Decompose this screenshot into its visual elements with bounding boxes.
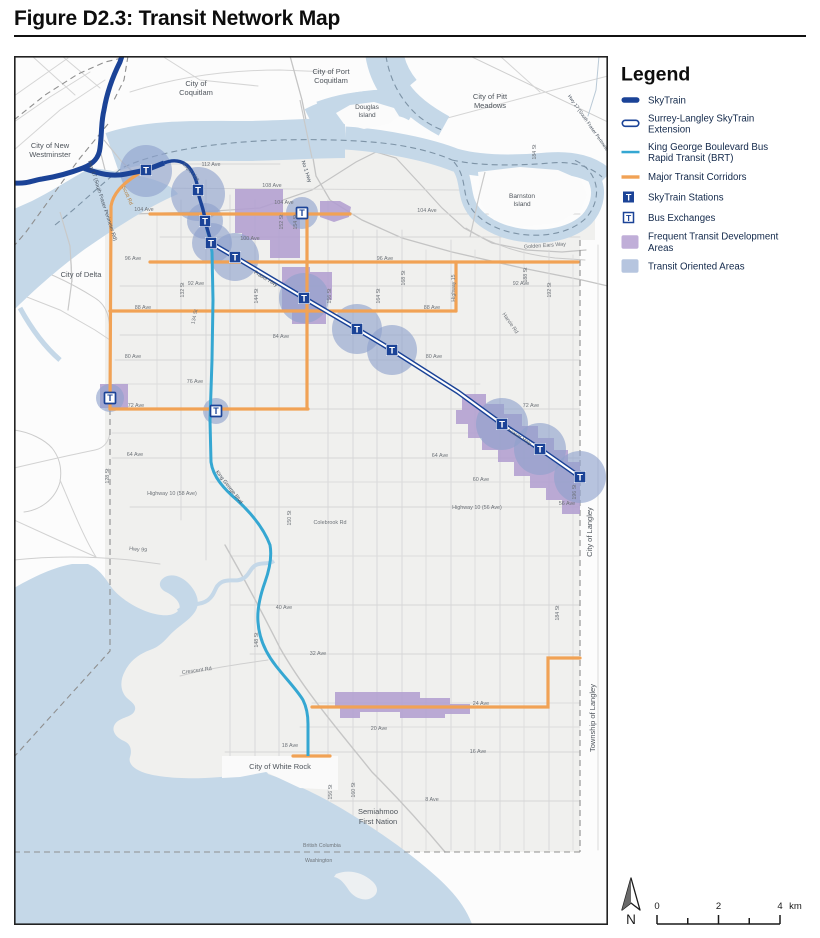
svg-text:Barnston: Barnston (509, 193, 535, 200)
svg-text:128 St: 128 St (105, 468, 111, 484)
svg-text:Frequent Transit Development: Frequent Transit Development (648, 232, 779, 243)
svg-text:4: 4 (777, 901, 782, 912)
svg-text:104 Ave: 104 Ave (417, 208, 436, 214)
svg-text:T: T (354, 324, 360, 335)
svg-text:92 Ave: 92 Ave (188, 281, 204, 287)
svg-text:72 Ave: 72 Ave (128, 403, 144, 409)
svg-text:T: T (202, 216, 208, 227)
svg-text:Township of Langley: Township of Langley (588, 684, 597, 752)
svg-text:Coquitlam: Coquitlam (314, 76, 348, 85)
svg-text:N: N (626, 912, 636, 927)
svg-text:0: 0 (654, 901, 659, 912)
svg-text:16 Ave: 16 Ave (470, 749, 486, 755)
svg-text:T: T (195, 185, 201, 196)
svg-text:T: T (143, 165, 149, 176)
svg-text:84 Ave: 84 Ave (273, 334, 289, 340)
svg-text:City of: City of (185, 79, 207, 88)
svg-text:Highway 15: Highway 15 (451, 274, 457, 301)
svg-text:160 St: 160 St (351, 782, 357, 798)
svg-text:64 Ave: 64 Ave (127, 452, 143, 458)
svg-text:Island: Island (358, 112, 376, 119)
svg-text:British Columbia: British Columbia (303, 843, 341, 849)
svg-text:Areas: Areas (648, 243, 673, 254)
svg-text:184 St: 184 St (532, 144, 538, 160)
svg-text:City of Port: City of Port (312, 67, 350, 76)
svg-text:24 Ave: 24 Ave (473, 701, 489, 707)
svg-text:T: T (499, 419, 505, 430)
svg-text:Westminster: Westminster (29, 150, 71, 159)
svg-text:T: T (626, 193, 632, 203)
svg-text:Highway 10 (58 Ave): Highway 10 (58 Ave) (147, 491, 197, 497)
svg-text:88 Ave: 88 Ave (424, 305, 440, 311)
svg-text:100 Ave: 100 Ave (240, 236, 259, 242)
svg-text:2: 2 (716, 901, 721, 912)
svg-text:Island: Island (513, 201, 531, 208)
svg-text:144 St: 144 St (254, 288, 260, 304)
svg-text:Legend: Legend (621, 64, 690, 86)
svg-text:80 Ave: 80 Ave (125, 354, 141, 360)
svg-text:18 Ave: 18 Ave (282, 743, 298, 749)
svg-text:Transit Oriented Areas: Transit Oriented Areas (648, 262, 745, 273)
svg-text:96 Ave: 96 Ave (125, 256, 141, 262)
svg-text:108 Ave: 108 Ave (262, 183, 281, 189)
svg-text:SkyTrain: SkyTrain (648, 96, 686, 107)
svg-text:56 Ave: 56 Ave (559, 501, 575, 507)
svg-text:148 St: 148 St (254, 632, 260, 648)
svg-text:First Nation: First Nation (359, 817, 397, 826)
svg-text:SkyTrain Stations: SkyTrain Stations (648, 193, 724, 204)
svg-text:Colebrook Rd: Colebrook Rd (314, 520, 347, 526)
svg-text:40 Ave: 40 Ave (276, 605, 292, 611)
svg-text:Coquitlam: Coquitlam (179, 88, 213, 97)
svg-text:Semiahmoo: Semiahmoo (358, 807, 398, 816)
svg-text:150 St: 150 St (287, 510, 293, 526)
svg-text:City of Delta: City of Delta (61, 270, 103, 279)
svg-text:T: T (626, 213, 632, 223)
svg-text:64 Ave: 64 Ave (432, 453, 448, 459)
svg-text:32 Ave: 32 Ave (310, 651, 326, 657)
svg-text:164 St: 164 St (376, 288, 382, 304)
svg-text:132 St: 132 St (180, 282, 186, 298)
svg-text:76 Ave: 76 Ave (187, 379, 203, 385)
svg-text:188 St: 188 St (523, 267, 529, 283)
svg-text:112 Ave: 112 Ave (202, 162, 221, 168)
svg-text:154 St: 154 St (293, 214, 299, 230)
svg-text:Major Transit Corridors: Major Transit Corridors (648, 172, 747, 183)
svg-text:Meadows: Meadows (474, 101, 506, 110)
svg-text:Rapid Transit (BRT): Rapid Transit (BRT) (648, 153, 733, 164)
svg-text:60 Ave: 60 Ave (473, 477, 489, 483)
svg-text:km: km (789, 901, 802, 912)
svg-text:168 St: 168 St (401, 270, 407, 286)
svg-text:King George Boulevard Bus: King George Boulevard Bus (648, 142, 768, 153)
svg-text:96 Ave: 96 Ave (377, 256, 393, 262)
svg-text:Bus Exchanges: Bus Exchanges (648, 213, 715, 224)
svg-text:192 St: 192 St (547, 282, 553, 298)
svg-text:20 Ave: 20 Ave (371, 726, 387, 732)
svg-text:Highway 10 (56 Ave): Highway 10 (56 Ave) (452, 505, 502, 511)
svg-text:Douglas: Douglas (355, 104, 380, 111)
svg-text:104 Ave: 104 Ave (274, 200, 293, 206)
svg-text:T: T (232, 252, 238, 263)
svg-text:184 St: 184 St (555, 605, 561, 621)
svg-text:City of White Rock: City of White Rock (249, 762, 311, 771)
svg-text:72 Ave: 72 Ave (523, 403, 539, 409)
svg-text:88 Ave: 88 Ave (135, 305, 151, 311)
svg-text:Washington: Washington (305, 858, 332, 864)
svg-text:156 St: 156 St (328, 784, 334, 800)
svg-text:T: T (537, 444, 543, 455)
svg-text:8 Ave: 8 Ave (425, 797, 438, 803)
svg-text:T: T (299, 208, 305, 218)
svg-text:196 St: 196 St (572, 484, 578, 500)
svg-text:T: T (389, 345, 395, 356)
svg-text:T: T (577, 472, 583, 483)
svg-text:Extension: Extension (648, 125, 691, 136)
svg-text:City of Langley: City of Langley (585, 507, 594, 557)
svg-text:T: T (213, 406, 219, 416)
svg-text:T: T (107, 393, 113, 403)
svg-text:City of New: City of New (31, 141, 70, 150)
svg-text:City of Pitt: City of Pitt (473, 92, 508, 101)
svg-text:104 Ave: 104 Ave (134, 207, 153, 213)
svg-text:80 Ave: 80 Ave (426, 354, 442, 360)
svg-text:Surrey-Langley SkyTrain: Surrey-Langley SkyTrain (648, 114, 754, 125)
svg-text:T: T (208, 238, 214, 249)
svg-text:152 St: 152 St (279, 214, 285, 230)
svg-text:T: T (301, 293, 307, 304)
svg-text:156 St: 156 St (327, 288, 333, 304)
